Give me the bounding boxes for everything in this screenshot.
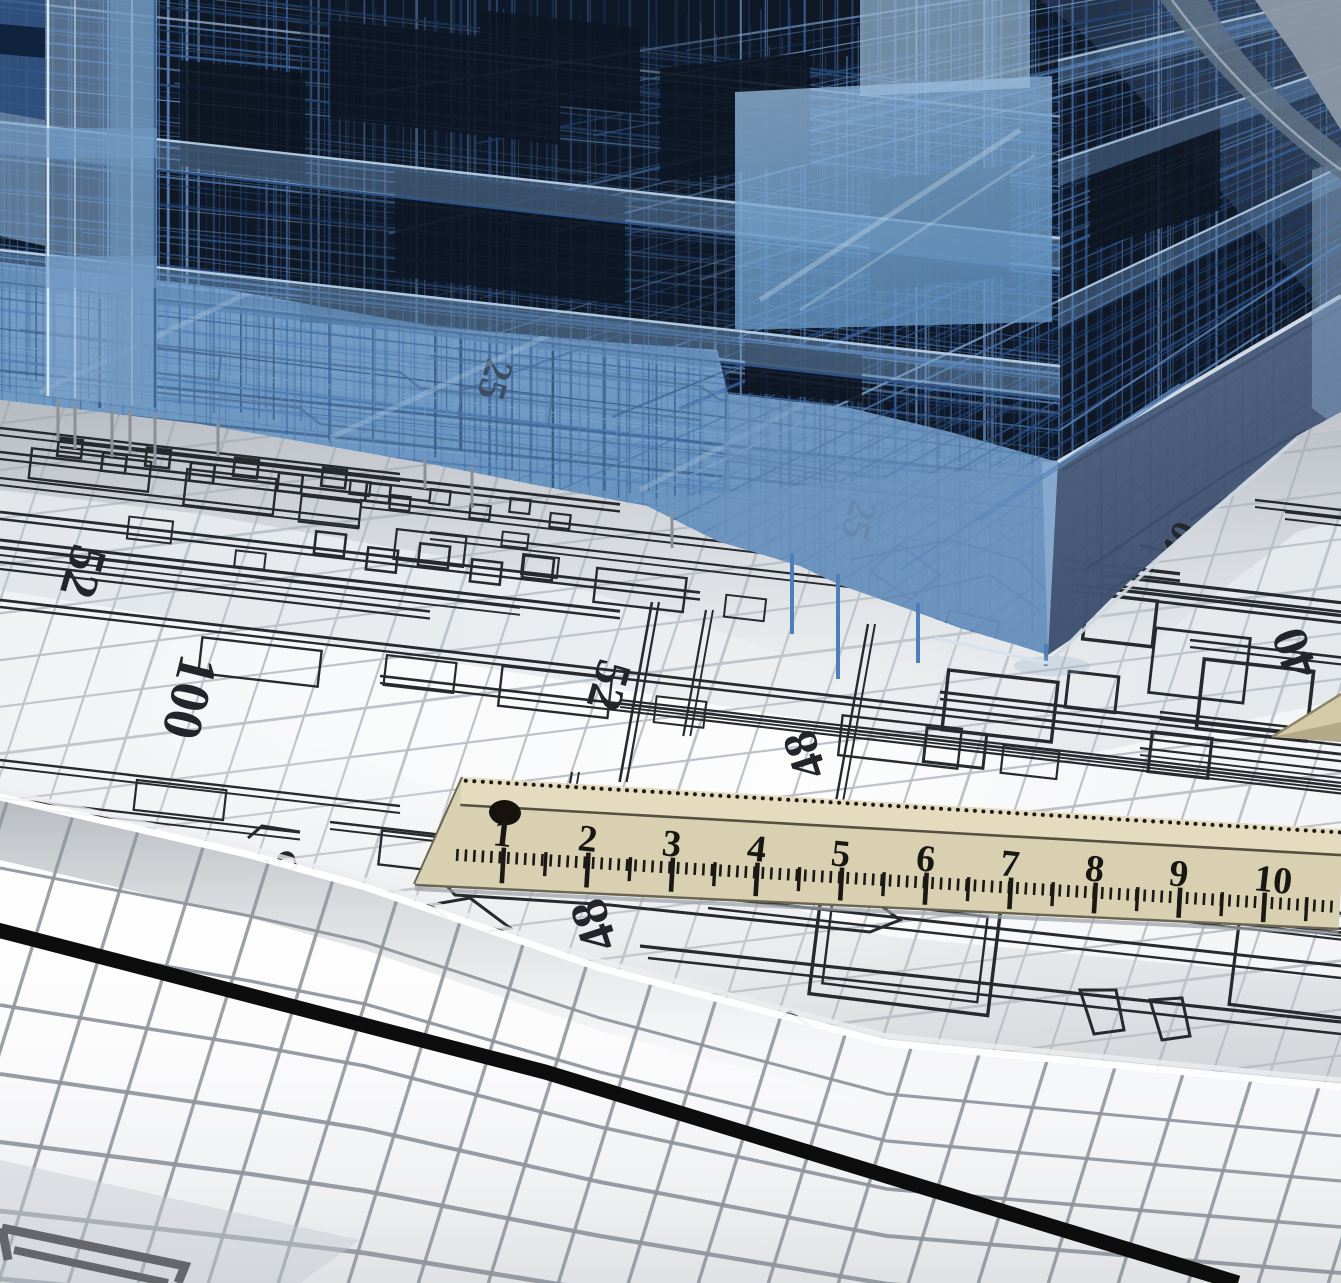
svg-text:10: 10	[1252, 857, 1294, 903]
